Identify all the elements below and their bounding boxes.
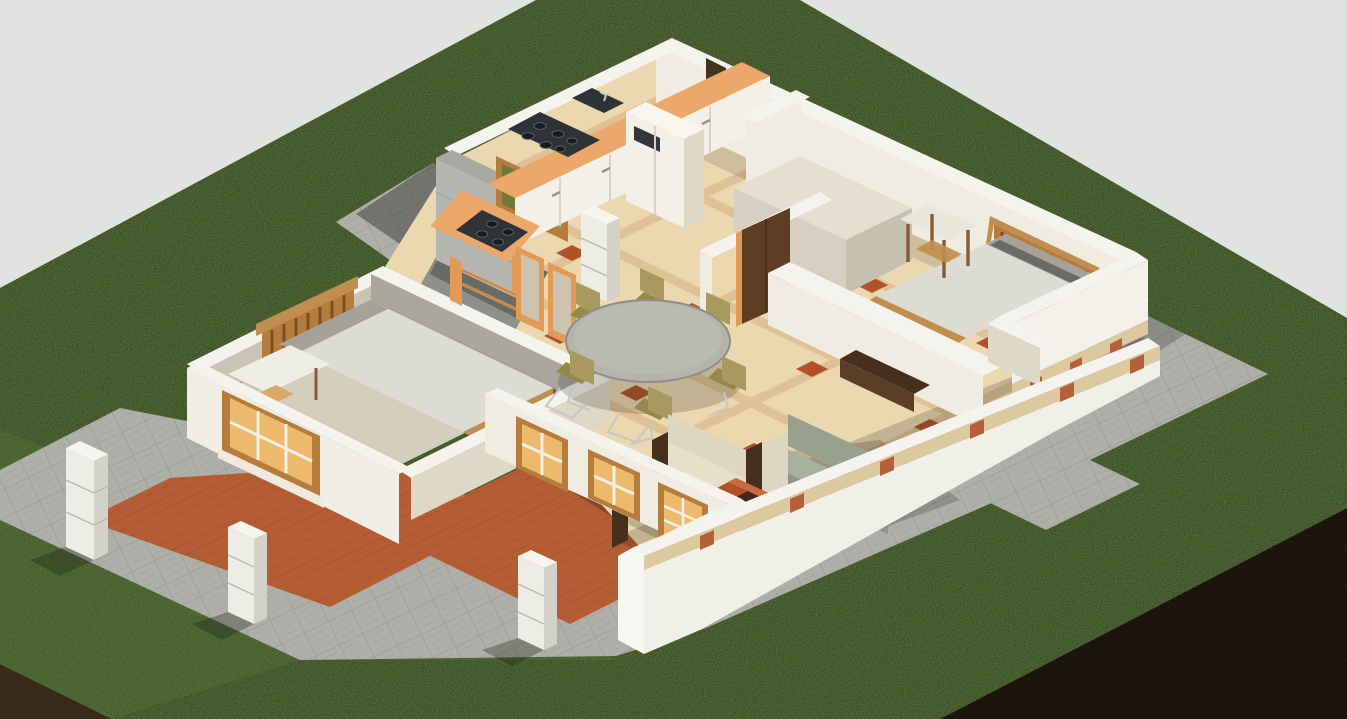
floorplan-render-svg xyxy=(0,0,1347,719)
rendered-scene xyxy=(0,0,1347,719)
wall-end-face xyxy=(618,548,644,654)
